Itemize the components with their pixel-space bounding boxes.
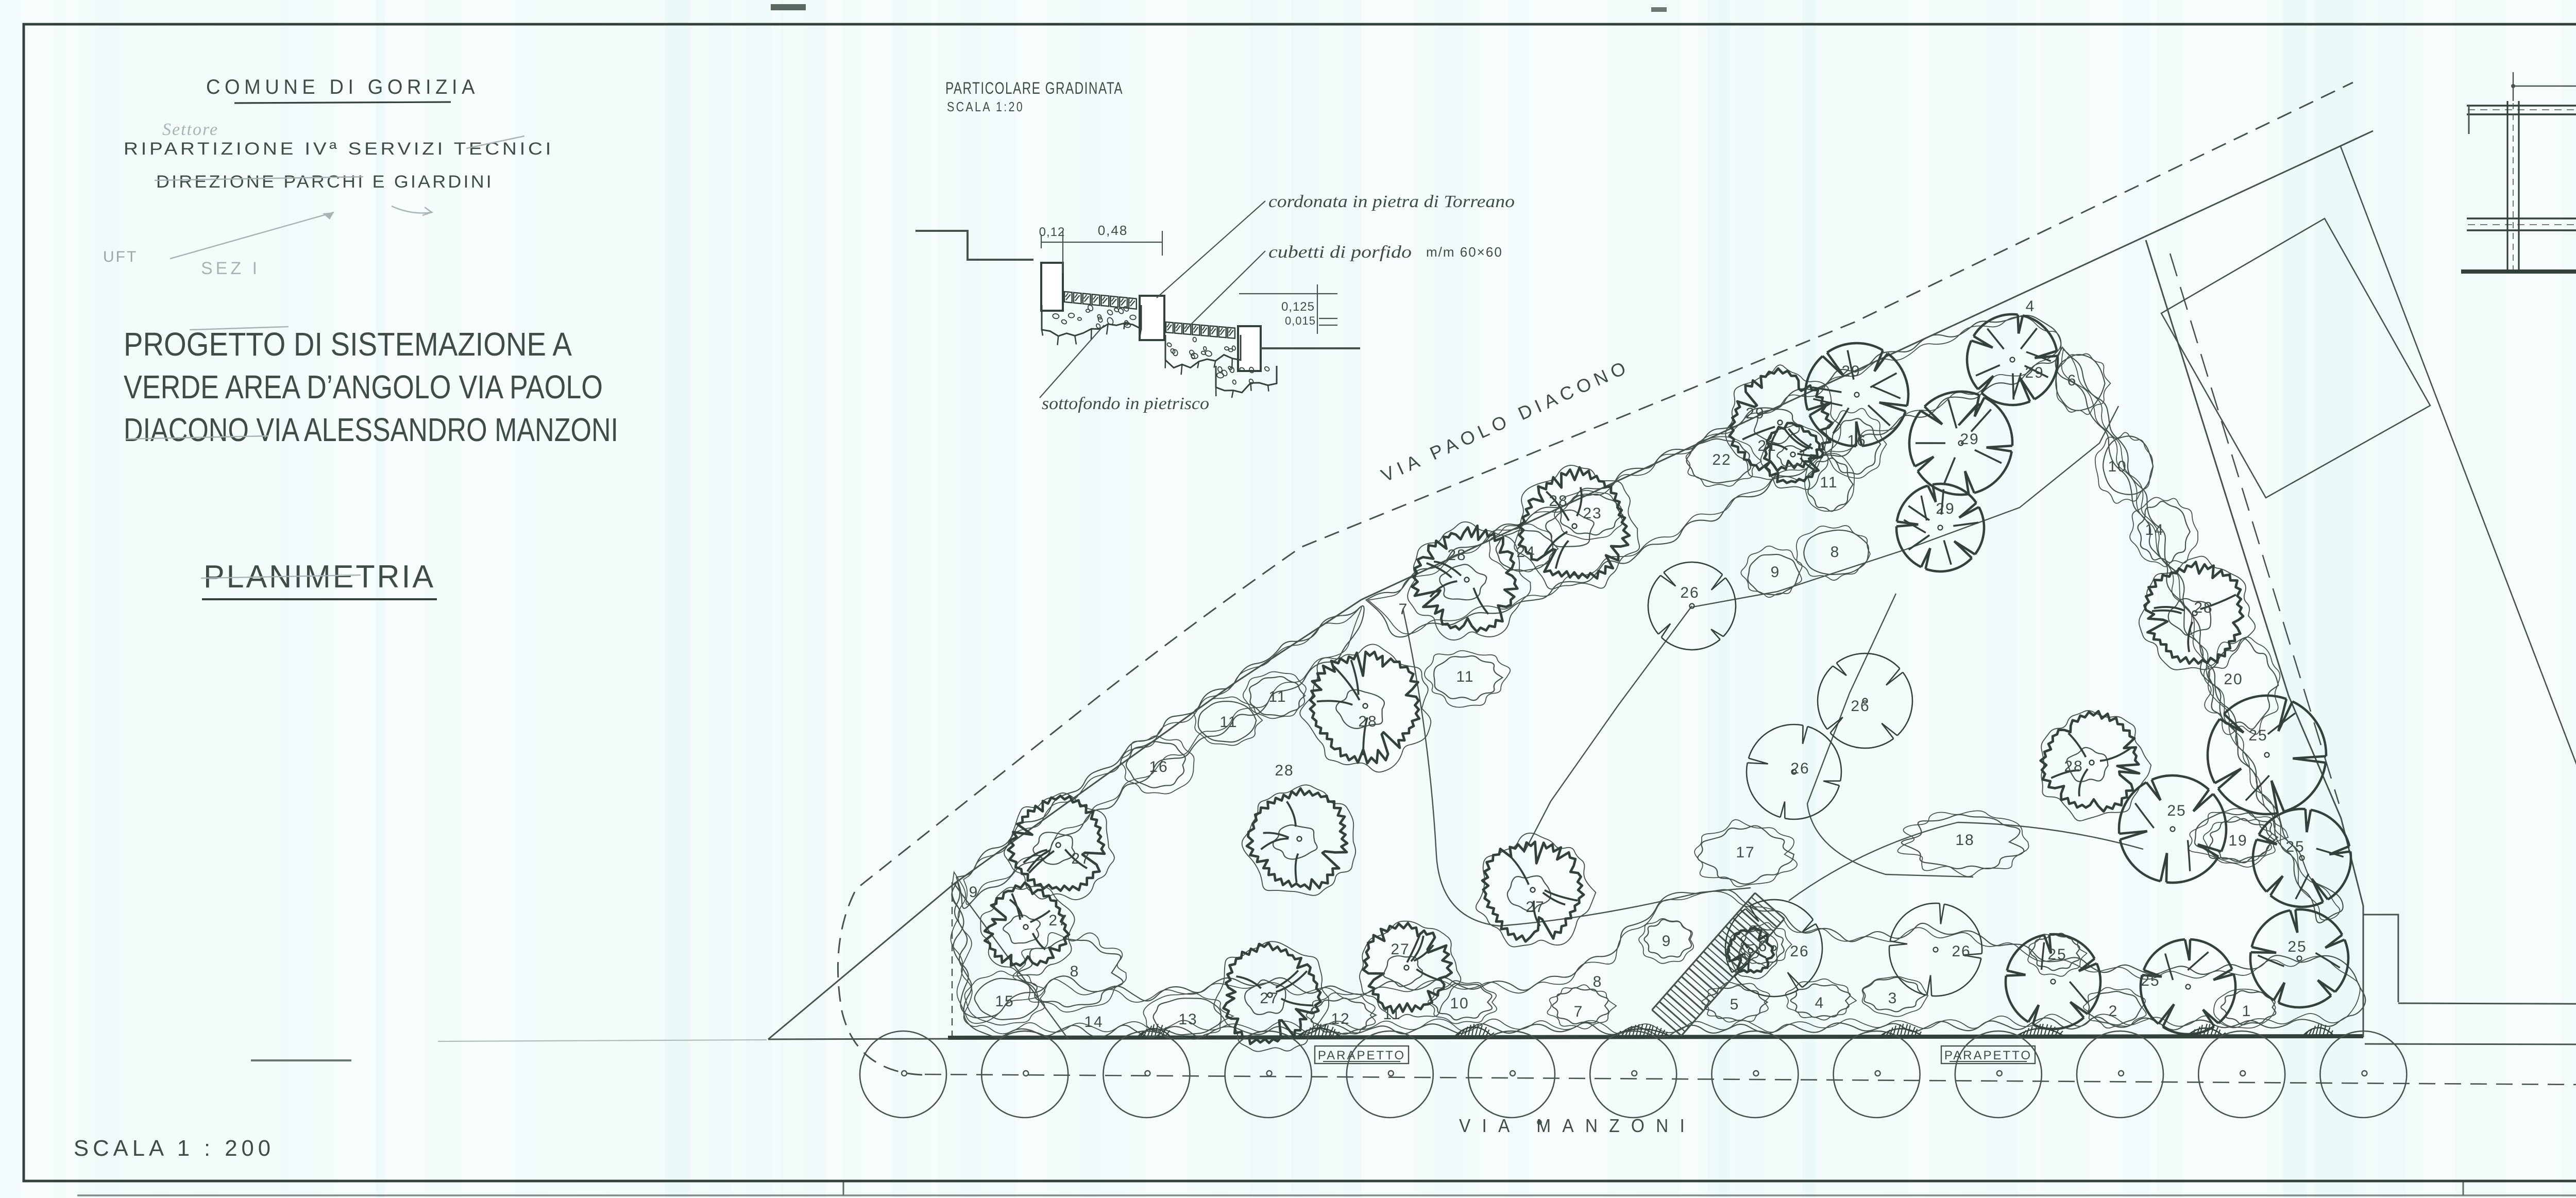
svg-text:11: 11 [1268,688,1286,705]
svg-text:4: 4 [1815,994,1825,1011]
svg-text:SCALA 1 : 200: SCALA 1 : 200 [74,1136,275,1161]
svg-text:27: 27 [1048,912,1067,929]
svg-text:0,015: 0,015 [1285,314,1316,327]
svg-text:13: 13 [1178,1011,1197,1028]
svg-text:7: 7 [1574,1003,1584,1020]
svg-text:11: 11 [1456,668,1474,685]
svg-text:PROGETTO DI SISTEMAZIONE A: PROGETTO DI SISTEMAZIONE A [124,326,572,363]
svg-text:cordonata in pietra di Torrean: cordonata in pietra di Torreano [1268,192,1515,211]
svg-text:29: 29 [1841,363,1860,380]
svg-text:6: 6 [1758,938,1768,955]
svg-text:SCALA 1:20: SCALA 1:20 [947,99,1024,114]
svg-text:Settore: Settore [162,120,218,139]
svg-text:16: 16 [1847,432,1866,449]
svg-text:20: 20 [2224,671,2243,688]
svg-text:PARAPETTO: PARAPETTO [1944,1049,2032,1062]
svg-text:29: 29 [1745,405,1765,422]
svg-text:6: 6 [2067,372,2077,389]
svg-text:5: 5 [1730,996,1740,1013]
svg-text:19: 19 [2228,832,2247,849]
svg-text:9: 9 [1771,564,1781,581]
svg-text:10: 10 [2108,458,2127,475]
svg-text:29: 29 [2025,364,2044,381]
svg-text:26: 26 [1790,943,1809,960]
svg-text:PARAPETTO: PARAPETTO [1318,1049,1405,1062]
svg-text:28: 28 [1275,762,1294,779]
svg-text:26: 26 [1680,584,1699,601]
svg-text:COMUNE DI GORIZIA: COMUNE DI GORIZIA [206,76,479,98]
svg-text:12: 12 [1331,1010,1350,1027]
svg-text:27: 27 [1391,941,1410,958]
svg-text:4: 4 [2026,298,2036,315]
svg-text:25: 25 [2141,972,2160,989]
svg-text:29: 29 [1936,500,1955,517]
svg-text:24: 24 [1516,544,1535,561]
svg-text:28: 28 [1549,493,1568,510]
svg-text:3: 3 [1888,990,1898,1007]
svg-text:DIREZIONE PARCHI E GIARDINI: DIREZIONE PARCHI E GIARDINI [156,172,494,192]
svg-text:14: 14 [2145,521,2164,538]
svg-text:RIPARTIZIONE IVª SERVIZI TECNI: RIPARTIZIONE IVª SERVIZI TECNICI [124,139,554,159]
svg-text:9: 9 [1662,933,1672,950]
svg-text:25: 25 [2047,946,2066,963]
svg-text:11: 11 [1383,1006,1401,1023]
svg-text:m/m 60×60: m/m 60×60 [1426,244,1503,260]
svg-text:16: 16 [1149,758,1168,775]
svg-text:28: 28 [1447,547,1466,564]
svg-text:25: 25 [2285,838,2304,855]
svg-text:26: 26 [1851,698,1870,715]
svg-text:1: 1 [2242,1003,2252,1020]
svg-text:15: 15 [995,993,1014,1010]
svg-text:28: 28 [2194,599,2213,616]
svg-text:14: 14 [1084,1014,1103,1031]
svg-text:28: 28 [2064,758,2083,775]
svg-text:VIA MANZONI: VIA MANZONI [1459,1115,1696,1136]
svg-text:29: 29 [1960,431,1979,448]
svg-text:25: 25 [2167,802,2186,819]
svg-text:21: 21 [1757,437,1776,454]
svg-text:0,48: 0,48 [1098,223,1128,238]
svg-text:SEZ I: SEZ I [201,259,260,278]
svg-text:25: 25 [2248,727,2267,744]
svg-text:26: 26 [1790,760,1809,777]
svg-text:2: 2 [2109,1003,2119,1020]
svg-text:18: 18 [1955,832,1974,849]
svg-text:27: 27 [1260,990,1279,1007]
svg-text:UFT: UFT [103,248,138,265]
svg-text:26: 26 [1952,943,1971,960]
svg-text:DIACONO VIA ALESSANDRO MANZONI: DIACONO VIA ALESSANDRO MANZONI [124,411,618,448]
svg-text:10: 10 [1450,995,1469,1012]
svg-text:8: 8 [1593,973,1603,990]
svg-text:7: 7 [1399,601,1409,618]
svg-text:17: 17 [1736,844,1755,861]
svg-text:8: 8 [1070,963,1080,980]
svg-text:0,12: 0,12 [1039,225,1065,239]
svg-text:27: 27 [1071,850,1090,867]
svg-text:11: 11 [1820,474,1838,491]
svg-text:PARTICOLARE GRADINATA: PARTICOLARE GRADINATA [945,79,1123,97]
svg-text:28: 28 [1358,713,1377,730]
svg-text:VERDE AREA D’ANGOLO VIA PAOLO: VERDE AREA D’ANGOLO VIA PAOLO [124,368,603,406]
svg-text:0,125: 0,125 [1281,300,1315,314]
svg-text:23: 23 [1583,505,1602,522]
svg-text:9: 9 [969,884,979,901]
svg-text:sottofondo in pietrisco: sottofondo in pietrisco [1042,394,1209,413]
svg-text:25: 25 [2287,938,2307,955]
svg-text:11: 11 [1219,714,1238,731]
svg-text:27: 27 [1526,899,1545,916]
svg-text:cubetti di porfido: cubetti di porfido [1268,243,1412,262]
svg-text:8: 8 [1831,544,1840,561]
svg-text:22: 22 [1712,451,1731,468]
